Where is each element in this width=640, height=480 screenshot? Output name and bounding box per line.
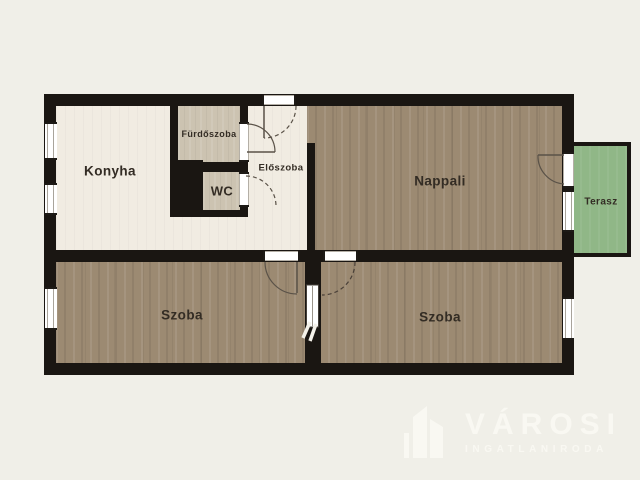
livingroom-terrace-window — [563, 190, 574, 232]
bathroom-bottom-wall — [203, 162, 240, 172]
terrace-door-opening — [563, 152, 574, 188]
bathroom-wc-shaft — [170, 160, 203, 217]
bathroom-door-opening — [239, 122, 249, 162]
kitchen-window-2 — [45, 183, 57, 215]
room-label-terrace: Terasz — [584, 197, 617, 208]
hallway-livingroom-wall — [307, 143, 315, 262]
bedroom-left-window — [45, 287, 57, 330]
logo-brand-text: VÁROSI — [465, 410, 622, 440]
bedroom-right-window — [563, 297, 574, 340]
room-label-hallway: Előszoba — [259, 163, 304, 174]
bedrooms-divider-wall — [305, 262, 321, 363]
room-label-livingroom: Nappali — [414, 174, 466, 189]
floorplan-image: Konyha Fürdőszoba WC Előszoba Nappali Te… — [0, 0, 640, 480]
entry-door-opening — [262, 95, 296, 105]
kitchen-window-1 — [45, 122, 57, 160]
building-icon — [403, 402, 455, 462]
logo-tagline-text: INGATLANIRODA — [465, 444, 622, 455]
room-label-bathroom: Fürdőszoba — [182, 129, 237, 139]
room-label-bedroom-left: Szoba — [161, 308, 203, 323]
bedroom-left-door-opening — [263, 251, 300, 261]
outer-wall-bottom — [44, 363, 574, 375]
varosi-watermark-logo: VÁROSI INGATLANIRODA — [403, 399, 623, 465]
room-label-wc: WC — [211, 184, 233, 199]
bedroom-right-door-opening — [323, 251, 358, 261]
room-label-bedroom-right: Szoba — [419, 310, 461, 325]
bathroom-left-wall — [170, 106, 178, 163]
room-label-kitchen: Konyha — [84, 164, 136, 179]
outer-wall-top — [44, 94, 574, 106]
wc-door-opening — [239, 172, 249, 207]
